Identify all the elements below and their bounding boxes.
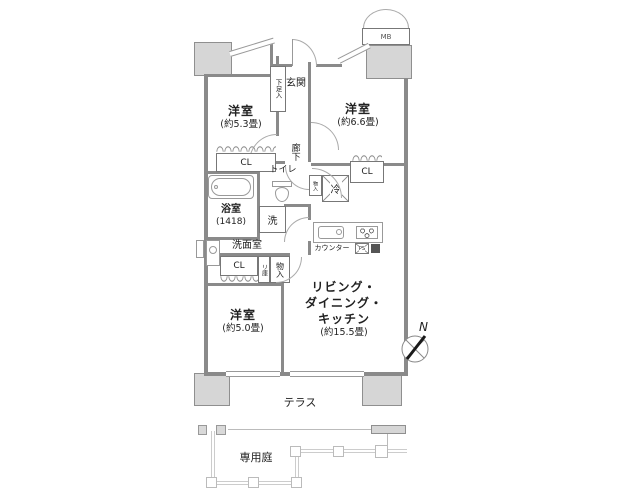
garden-post-3	[291, 477, 302, 488]
garden-post-5	[333, 446, 344, 457]
bedroom1-closet-folding-door	[216, 144, 276, 153]
toilet-bowl-icon	[275, 187, 289, 202]
garden-post-6	[375, 445, 388, 458]
diagonal-window-left	[229, 38, 275, 57]
meter-box-label: MB	[381, 33, 392, 41]
wall-entry-top-right	[316, 64, 342, 67]
vanity-basin-icon	[209, 246, 217, 254]
garden-fence-right	[295, 449, 407, 453]
washroom-door-arc	[284, 217, 309, 242]
pillar-top-left	[194, 42, 232, 76]
ldk-label: リビング・ ダイニング・ キッチン (約15.5畳)	[294, 276, 394, 342]
bedroom3-label: 洋室 (約5.0畳)	[206, 304, 280, 338]
compass: N	[396, 318, 436, 368]
terrace-post-2	[216, 425, 226, 435]
pillar-top-right	[366, 45, 412, 79]
meter-box: MB	[362, 28, 410, 45]
wall-bedroom3-ldk	[281, 283, 284, 376]
terrace-gate-bar	[371, 425, 406, 434]
bedroom2-closet: CL	[350, 161, 384, 183]
pillar-bottom-right	[362, 373, 402, 406]
pipe-space-box: PS	[355, 243, 369, 254]
bedroom1-label: 洋室 (約5.3畳)	[206, 100, 276, 134]
service-nub	[196, 240, 204, 258]
wall-top-bedroom1	[204, 74, 278, 77]
meter-box-door-right-arc	[386, 9, 409, 28]
hallway-label: 廊下	[287, 136, 301, 168]
meter-box-door-left-arc	[363, 9, 386, 28]
garden-post-4	[290, 446, 301, 457]
terrace-label: テラス	[281, 396, 319, 410]
bedroom2-label: 洋室 (約6.6畳)	[318, 98, 398, 132]
window-ldk	[290, 371, 364, 377]
entrance-door-arc	[292, 39, 317, 66]
bedroom3-closet-folding-door	[220, 276, 258, 284]
counter-label: カウンター	[311, 244, 353, 253]
washer-box: 洗	[259, 206, 286, 233]
compass-north-label: N	[419, 320, 428, 334]
bathtub-drain-icon	[214, 185, 218, 189]
garden-post-2	[248, 477, 259, 488]
floor-plan: MB 玄関 下足入 廊下 洋室 (約5.3畳) CL	[0, 0, 625, 500]
bedroom2-closet-folding-door	[352, 153, 382, 161]
bathroom-label: 浴室 (1418)	[204, 202, 258, 230]
window-bedroom3	[226, 371, 280, 377]
garden-post-1	[206, 477, 217, 488]
terrace-post-1	[198, 425, 207, 435]
garden-label: 専用庭	[234, 451, 278, 465]
ldk-door-arc	[312, 168, 342, 198]
shoe-cabinet-label: 下足入	[273, 79, 283, 99]
terrace-edge-line	[228, 429, 373, 430]
shelf-block	[371, 244, 380, 253]
garden-fence-left	[211, 431, 215, 481]
stove-icon	[356, 226, 378, 239]
washroom-label: 洗面室	[214, 240, 280, 253]
bedroom3-closet: CL	[220, 256, 258, 276]
linen-cabinet: リ庫	[258, 256, 270, 283]
kitchen-faucet-icon	[336, 229, 342, 235]
entrance-door-leaf	[292, 39, 293, 66]
wall-toilet-bottom	[284, 204, 308, 207]
pillar-bottom-left	[194, 373, 230, 406]
